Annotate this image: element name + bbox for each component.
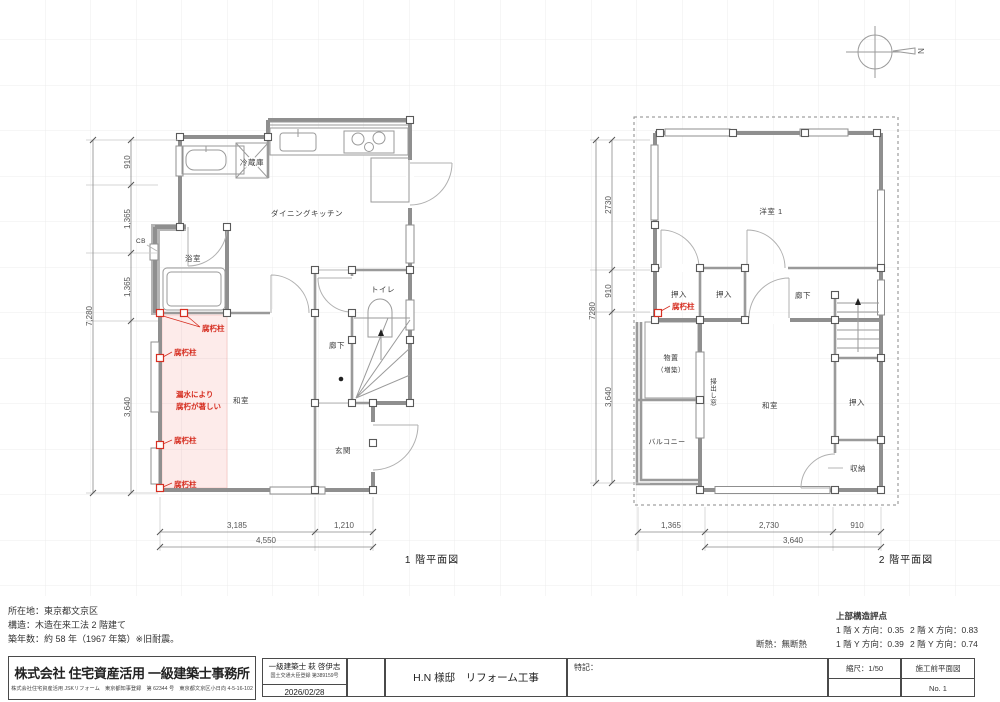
stamp-cell — [347, 658, 385, 697]
floor2-title: 2 階平面図 — [879, 554, 933, 566]
room-label-balcony: バルコニー — [648, 438, 685, 446]
window — [878, 190, 885, 265]
architect-block: 一級建築士 萩 啓伊志 国土交通大臣登録 第389159号 2026/02/28 — [262, 658, 347, 697]
room-label-washitsu: 和室 — [233, 395, 249, 405]
scale-cell: 縮尺：1/50 — [828, 658, 901, 697]
svg-text:3,640: 3,640 — [604, 386, 613, 407]
window — [651, 145, 658, 220]
site-structure: 構造：木造在来工法 2 階建て — [8, 618, 179, 632]
svg-text:4,550: 4,550 — [256, 536, 277, 545]
room-label-monooki: 物置 — [664, 353, 679, 362]
drawing-sheet: N — [0, 0, 1000, 702]
room-label-hall: 廊下 — [329, 340, 345, 350]
svg-text:1,365: 1,365 — [123, 276, 132, 297]
window — [878, 280, 885, 315]
room-label-oshiire-a: 押入 — [671, 289, 687, 299]
svg-text:2,730: 2,730 — [759, 521, 780, 530]
leak-note-line1: 漏水により — [176, 389, 213, 399]
room-label-yoshitsu1: 洋室 1 — [759, 206, 782, 216]
north-label: N — [916, 48, 925, 54]
decay-label: 腐朽柱 — [202, 323, 225, 333]
window — [150, 244, 158, 260]
svg-text:3,640: 3,640 — [123, 396, 132, 417]
project-title: H.N 様邸 リフォーム工事 — [413, 670, 539, 685]
site-age: 築年数：約 58 年（1967 年築）※旧耐震。 — [8, 632, 179, 646]
floor-plan-drawing: N — [0, 0, 1000, 702]
score-1f-x: 1 階 X 方向：0.35 — [836, 624, 904, 636]
site-info: 所在地：東京都文京区 構造：木造在来工法 2 階建て 築年数：約 58 年（19… — [8, 604, 179, 646]
window — [151, 448, 159, 484]
svg-text:7,280: 7,280 — [85, 305, 94, 326]
svg-text:1,365: 1,365 — [661, 521, 682, 530]
company-titleblock: 株式会社 住宅資産活用 一級建築士事務所 株式会社住宅資産活用 JSKリフォーム… — [8, 656, 256, 700]
notes-cell: 特記： — [567, 658, 828, 697]
svg-text:1,210: 1,210 — [334, 521, 355, 530]
svg-text:910: 910 — [604, 284, 613, 298]
room-label-shuno: 収納 — [850, 463, 866, 473]
svg-text:7280: 7280 — [588, 302, 597, 320]
svg-text:2730: 2730 — [604, 196, 613, 214]
svg-text:910: 910 — [123, 155, 132, 169]
room-label-washitsu-2f: 和室 — [762, 400, 778, 410]
insulation-note: 断熱：無断熱 — [756, 638, 807, 650]
room-label-genkan: 玄関 — [335, 445, 351, 455]
svg-text:1,365: 1,365 — [123, 208, 132, 229]
sheet-cell: 施工前平面図 No. 1 — [901, 658, 975, 697]
svg-text:910: 910 — [850, 521, 864, 530]
decay-label: 腐朽柱 — [174, 435, 197, 445]
window — [406, 225, 414, 263]
hakidashi-window — [696, 352, 704, 438]
room-label-oshiire-b: 押入 — [716, 289, 732, 299]
score-1f-y: 1 階 Y 方向：0.39 — [836, 638, 904, 650]
window — [665, 129, 730, 136]
floor1-title: 1 階平面図 — [405, 554, 459, 566]
sheet-number: No. 1 — [902, 679, 974, 697]
room-label-oshiire-c: 押入 — [849, 397, 865, 407]
grid — [0, 0, 1000, 596]
room-label-bath: 浴室 — [185, 253, 201, 263]
decay-label: 腐朽柱 — [672, 301, 695, 311]
drawing-date: 2026/02/28 — [263, 688, 346, 697]
score-2f-y: 2 階 Y 方向：0.74 — [910, 638, 978, 650]
company-name: 株式会社 住宅資産活用 一級建築士事務所 — [9, 663, 255, 682]
room-label-toilet: トイレ — [371, 285, 395, 294]
window — [151, 342, 159, 412]
leak-note-line2: 腐朽が著しい — [176, 401, 221, 411]
architect-registration: 国土交通大臣登録 第389159号 — [263, 672, 346, 679]
sheet-title: 施工前平面図 — [902, 659, 974, 679]
svg-text:3,640: 3,640 — [783, 536, 804, 545]
project-title-cell: H.N 様邸 リフォーム工事 — [385, 658, 567, 697]
cb-label: CB — [136, 238, 146, 245]
site-location: 所在地：東京都文京区 — [8, 604, 179, 618]
company-registration: 株式会社住宅資産活用 JSKリフォーム 東京都知事登録 第 62344 号 東京… — [9, 685, 255, 692]
decay-label: 腐朽柱 — [174, 479, 197, 489]
score-2f-x: 2 階 X 方向：0.83 — [910, 624, 978, 636]
score-heading: 上部構造評点 — [836, 610, 887, 622]
room-label-monooki-sub: （増築） — [657, 365, 685, 374]
scale-value: 縮尺：1/50 — [829, 659, 900, 679]
svg-text:3,185: 3,185 — [227, 521, 248, 530]
architect-name: 一級建築士 萩 啓伊志 — [263, 661, 346, 672]
room-label-hall-2f: 廊下 — [795, 290, 811, 300]
room-label-dk: ダイニングキッチン — [271, 208, 343, 218]
window — [406, 300, 414, 330]
decay-label: 腐朽柱 — [174, 347, 197, 357]
notes-label: 特記： — [574, 663, 598, 672]
